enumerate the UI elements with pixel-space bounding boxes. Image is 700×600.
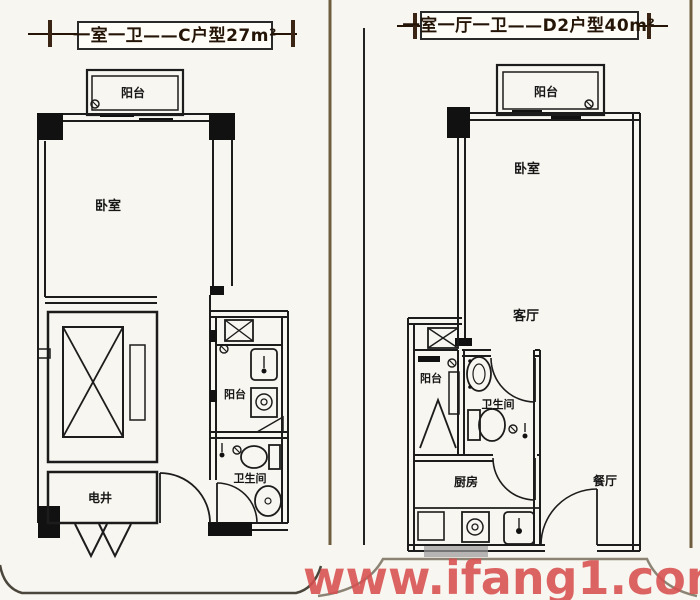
right-bathroom-label: 卫生间 <box>482 397 515 411</box>
corner-column <box>208 522 252 536</box>
right-bedroom-label: 卧室 <box>514 161 540 177</box>
left-bathroom-label: 卫生间 <box>234 471 267 485</box>
watermark-text: www.ifang1.com <box>303 551 700 600</box>
light-icon <box>523 434 528 439</box>
corner-column <box>447 107 470 138</box>
left-balcony-label: 阳台 <box>121 85 145 100</box>
hinge-mark <box>210 330 217 342</box>
right-service-balcony-label: 阳台 <box>420 371 442 385</box>
right-balcony-label: 阳台 <box>534 84 558 99</box>
kitchen-label: 厨房 <box>454 474 478 489</box>
dimension-bar <box>291 20 295 47</box>
electric-shaft-label: 电井 <box>88 490 112 505</box>
light-icon <box>220 453 225 458</box>
hinge-mark <box>210 390 217 402</box>
dimension-bar <box>48 20 52 47</box>
left-title-text: 一室一卫——C户型27m² <box>73 25 277 46</box>
left-bedroom-label: 卧室 <box>95 198 121 214</box>
corner-column <box>209 113 235 140</box>
wall-tick <box>210 286 224 295</box>
right-plan-title: 一室一厅一卫——D2户型40m² <box>397 12 668 39</box>
dining-room-label: 餐厅 <box>593 473 617 488</box>
wall-tick <box>418 356 440 362</box>
left-service-balcony-label: 阳台 <box>224 387 246 401</box>
living-room-label: 客厅 <box>513 308 539 324</box>
corner-column <box>37 113 63 140</box>
floorplan-page: 一室一卫——C户型27m² 一室一厅一卫——D2户型40m² <box>0 0 700 600</box>
page-background <box>0 0 700 600</box>
right-title-text: 一室一厅一卫——D2户型40m² <box>403 15 656 36</box>
